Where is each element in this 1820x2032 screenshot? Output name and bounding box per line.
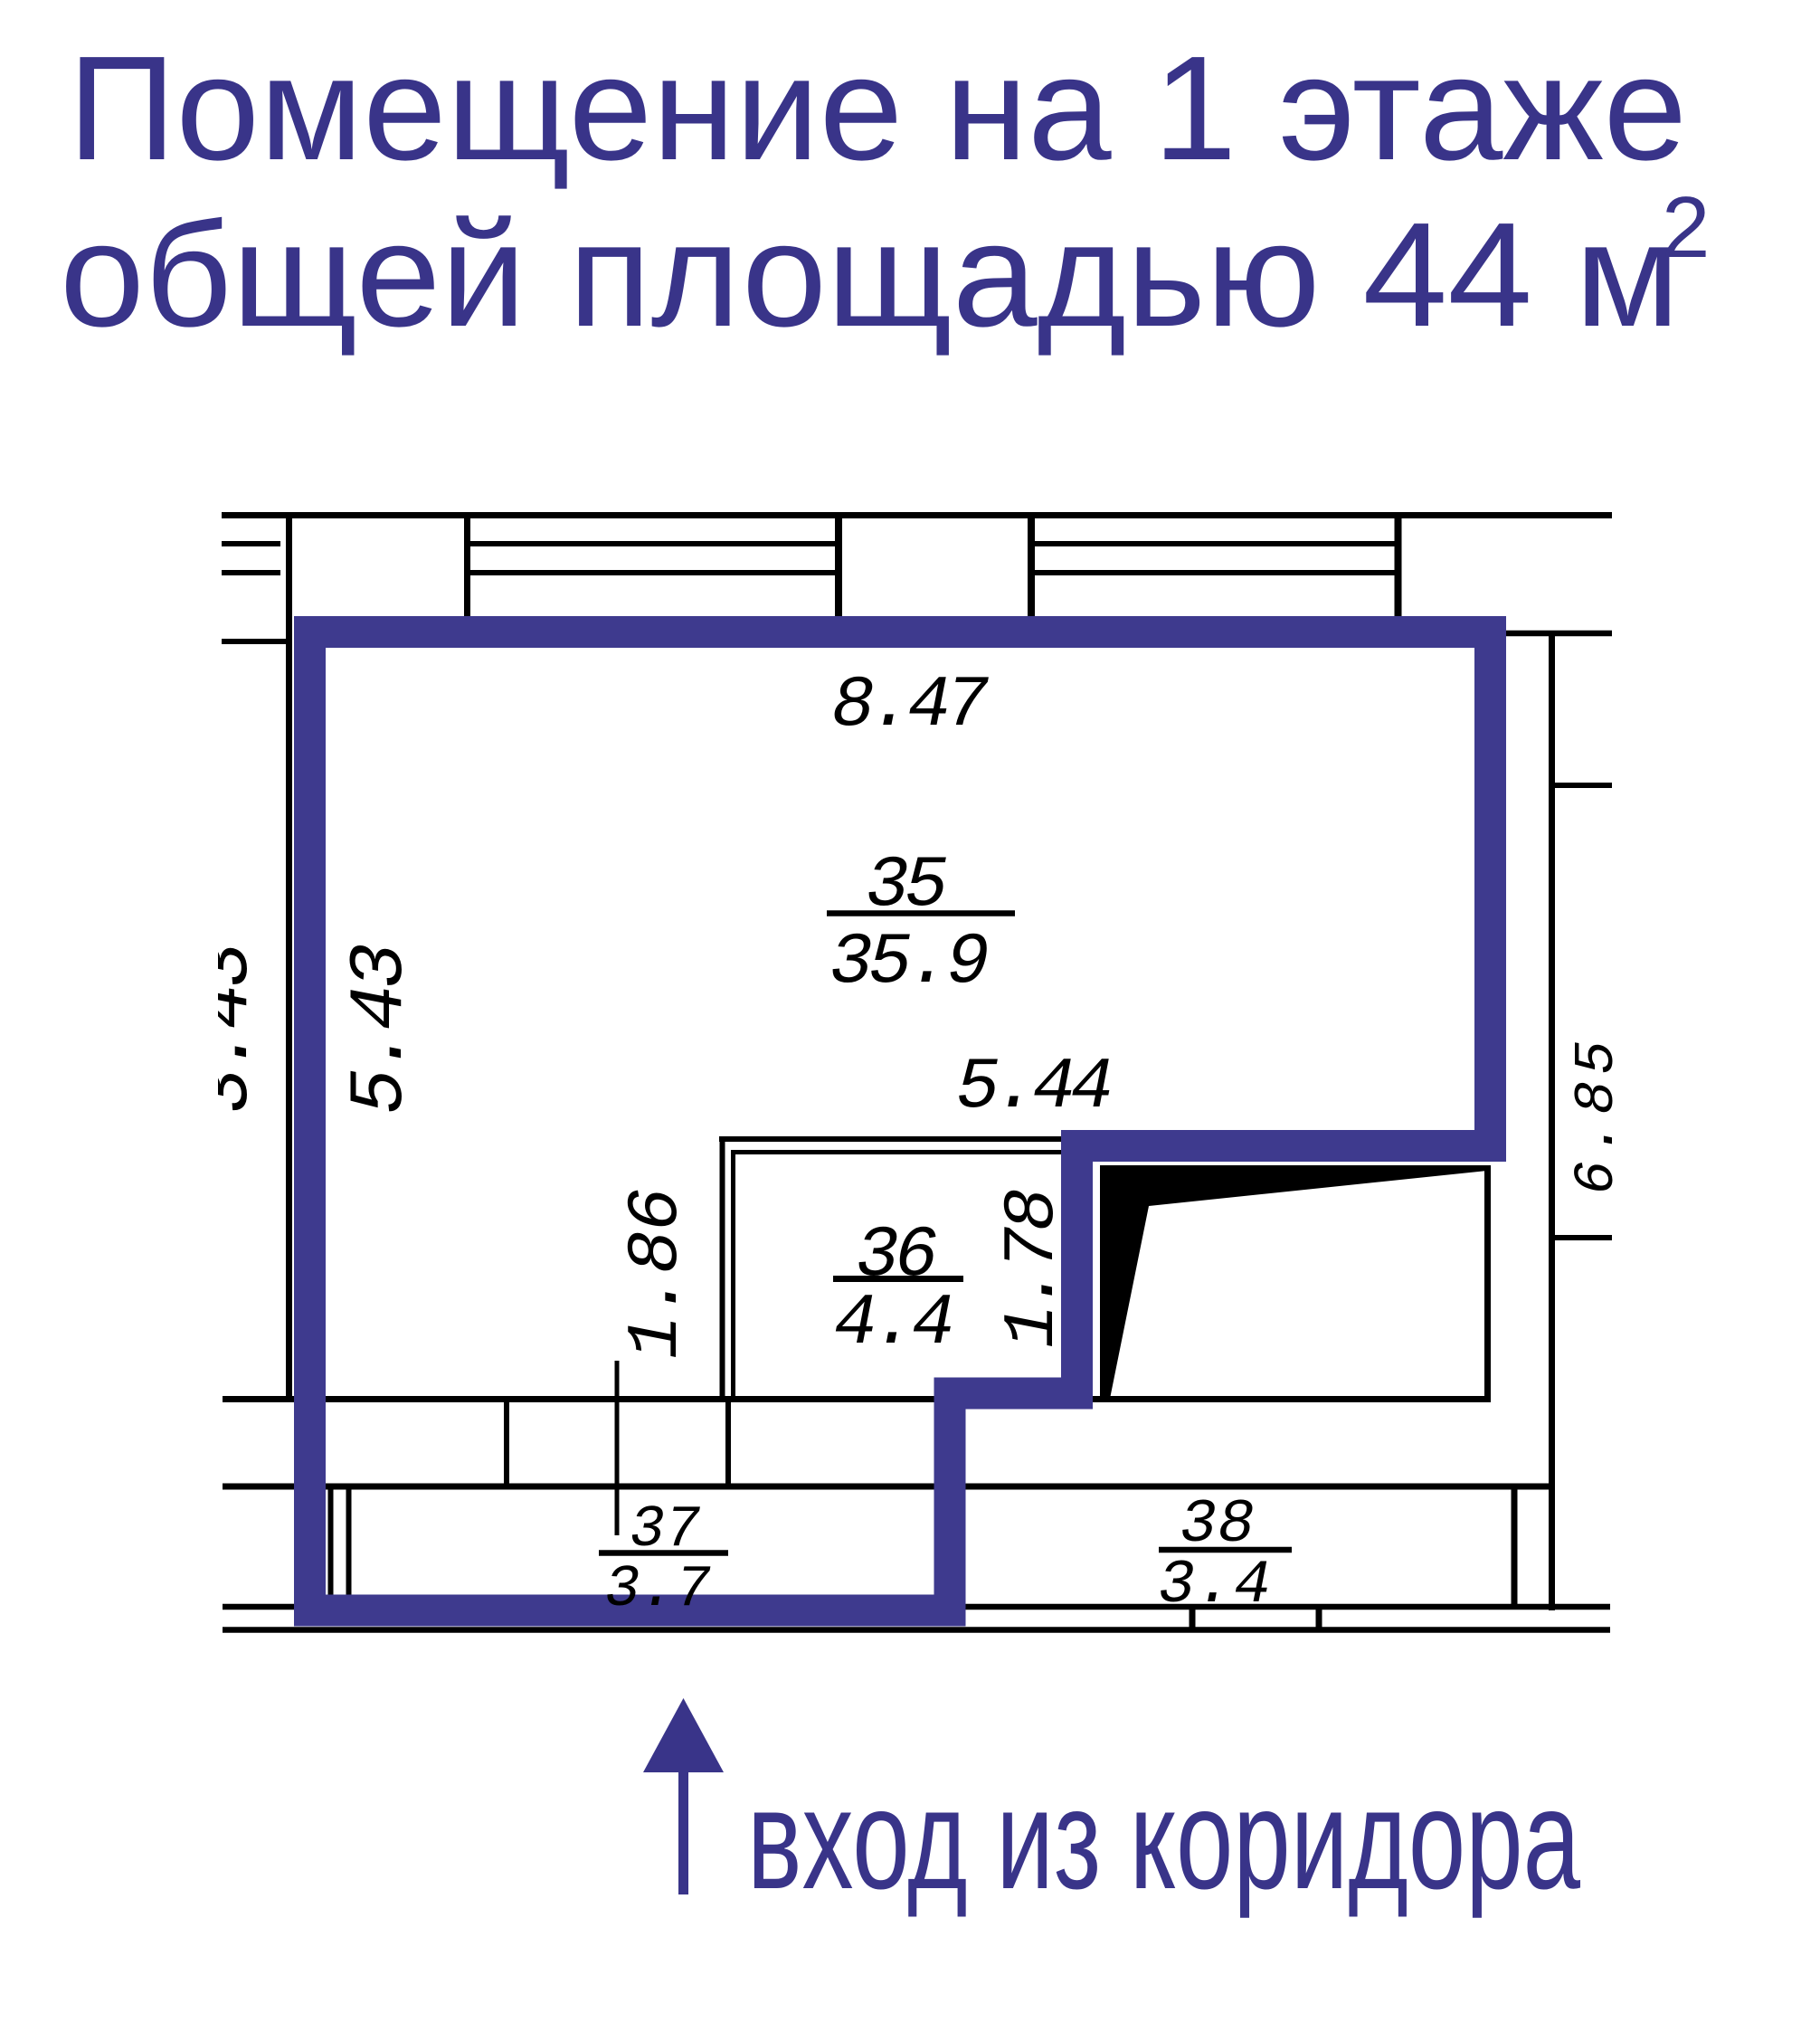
svg-text:общей площадью 44 м: общей площадью 44 м: [60, 192, 1680, 357]
svg-text:8.47: 8.47: [831, 665, 989, 747]
svg-text:5.43: 5.43: [338, 945, 424, 1115]
svg-text:6.85: 6.85: [1565, 1035, 1629, 1195]
svg-text:3.7: 3.7: [604, 1556, 710, 1623]
svg-text:5.44: 5.44: [956, 1047, 1110, 1129]
svg-text:вход из коридора: вход из коридора: [747, 1760, 1580, 1919]
svg-text:4.4: 4.4: [833, 1283, 951, 1365]
svg-text:35.9: 35.9: [829, 922, 987, 1004]
svg-text:3.4: 3.4: [1158, 1551, 1271, 1620]
svg-text:Помещение на 1 этаже: Помещение на 1 этаже: [68, 25, 1687, 191]
svg-text:1.86: 1.86: [616, 1189, 698, 1359]
svg-text:1.78: 1.78: [992, 1190, 1075, 1348]
svg-text:2: 2: [1662, 179, 1710, 276]
